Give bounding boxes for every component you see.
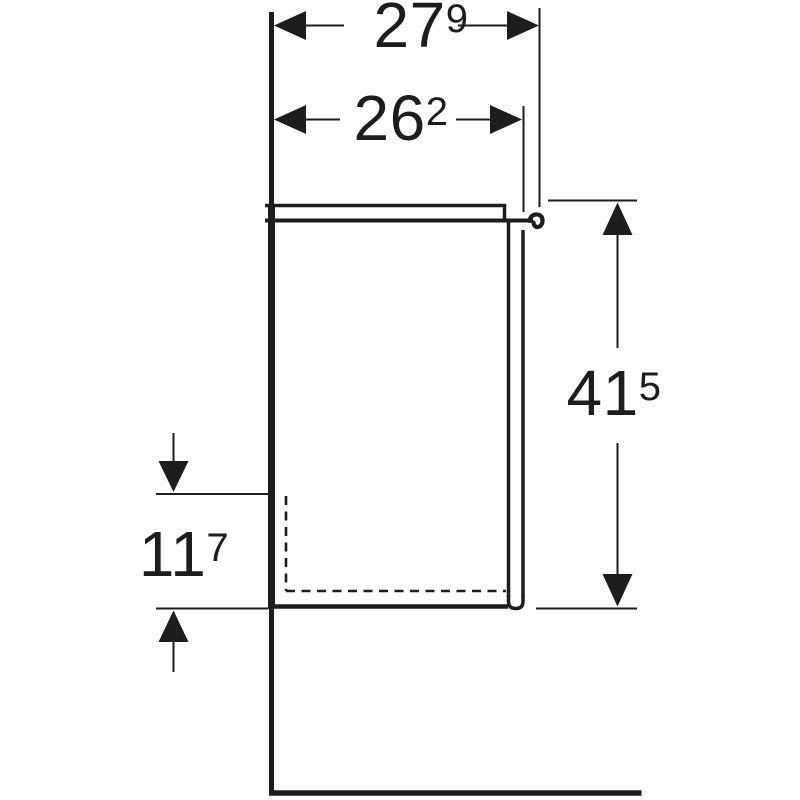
- dim-label-top-outer: 279: [374, 0, 469, 61]
- dim-label-top-outer-main: 27: [374, 0, 446, 61]
- dim-label-height: 415: [567, 357, 662, 429]
- door-handle-profile: [530, 214, 543, 227]
- arrowhead-height-bottom: [603, 574, 633, 607]
- dim-label-top-outer-sup: 9: [446, 0, 469, 41]
- dim-label-recess-sup: 7: [206, 526, 229, 570]
- door-bottom-edge: [509, 595, 524, 609]
- technical-drawing-canvas: 279 262 415 117: [0, 0, 800, 800]
- dim-label-top-inner-main: 26: [354, 82, 426, 154]
- arrowhead-height-top: [603, 203, 633, 236]
- arrowhead-recess-top: [159, 461, 189, 492]
- dim-label-recess: 117: [139, 518, 229, 590]
- drawing-root: 279 262 415 117: [139, 0, 662, 793]
- dim-label-top-inner-sup: 2: [426, 90, 449, 134]
- solid-shapes: 279 262 415 117: [139, 0, 662, 642]
- dim-label-height-sup: 5: [639, 365, 662, 409]
- arrowhead-recess-bottom: [159, 611, 189, 643]
- dim-label-top-inner: 262: [354, 82, 449, 154]
- dim-label-height-main: 41: [567, 357, 639, 429]
- dim-label-recess-main: 11: [139, 518, 206, 590]
- arrowhead-top-inner-right: [490, 105, 522, 134]
- cabinet-side-view-drawing: 279 262 415 117: [0, 0, 800, 800]
- arrowhead-top-outer-right: [507, 11, 539, 40]
- arrowhead-top-outer-left: [274, 11, 306, 40]
- arrowhead-top-inner-left: [274, 105, 306, 134]
